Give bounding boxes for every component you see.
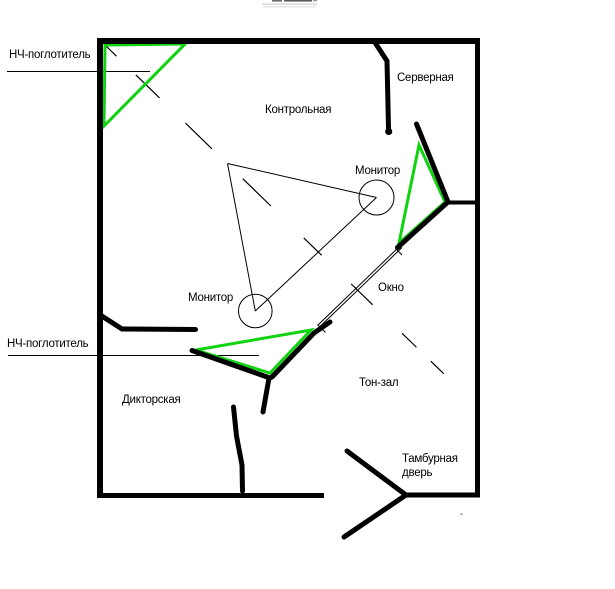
svg-text:Контрольная: Контрольная: [265, 104, 331, 116]
svg-text:Дикторская: Дикторская: [122, 394, 180, 406]
svg-text:Тон-зал: Тон-зал: [359, 377, 398, 389]
svg-text:НЧ-поглотитель: НЧ-поглотитель: [9, 49, 91, 61]
svg-text:Тамбурная: Тамбурная: [402, 453, 458, 465]
svg-text:дверь: дверь: [402, 467, 432, 479]
svg-text:Окно: Окно: [378, 282, 404, 294]
svg-text:НЧ-поглотитель: НЧ-поглотитель: [7, 338, 89, 350]
svg-text:Серверная: Серверная: [397, 72, 454, 84]
svg-text:Монитор: Монитор: [188, 292, 233, 304]
svg-text:Монитор: Монитор: [355, 165, 400, 177]
